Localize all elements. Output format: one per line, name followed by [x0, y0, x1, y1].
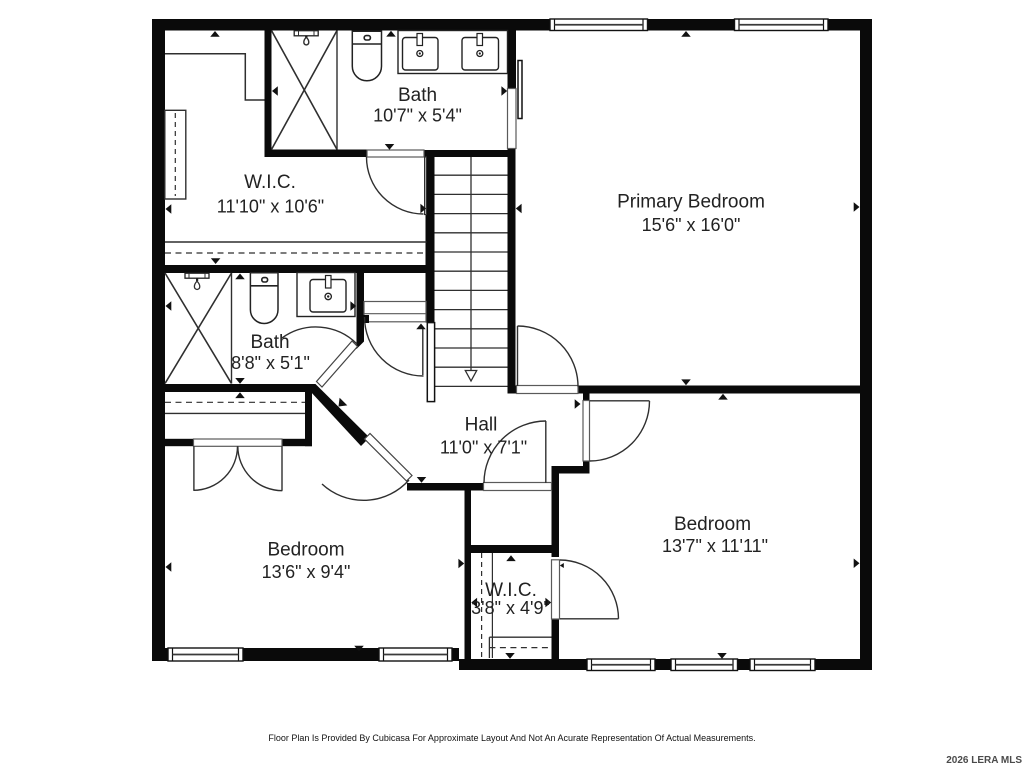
svg-text:13'6" x 9'4": 13'6" x 9'4" — [262, 562, 351, 582]
svg-text:15'6" x 16'0": 15'6" x 16'0" — [642, 215, 741, 235]
svg-text:Bedroom: Bedroom — [267, 540, 344, 561]
svg-text:Bath: Bath — [250, 332, 289, 353]
svg-text:11'10" x 10'6": 11'10" x 10'6" — [217, 197, 324, 217]
svg-text:Bedroom: Bedroom — [674, 514, 751, 535]
svg-text:13'7" x 11'11": 13'7" x 11'11" — [662, 536, 768, 556]
svg-text:10'7" x 5'4": 10'7" x 5'4" — [373, 106, 462, 126]
svg-text:3'8" x 4'9": 3'8" x 4'9" — [471, 598, 550, 618]
svg-text:11'0" x 7'1": 11'0" x 7'1" — [440, 438, 527, 458]
svg-text:8'8" x 5'1": 8'8" x 5'1" — [231, 353, 310, 373]
svg-text:Bath: Bath — [398, 85, 437, 106]
svg-text:Hall: Hall — [465, 415, 498, 436]
svg-text:W.I.C.: W.I.C. — [244, 172, 296, 193]
svg-text:Primary Bedroom: Primary Bedroom — [617, 192, 765, 213]
